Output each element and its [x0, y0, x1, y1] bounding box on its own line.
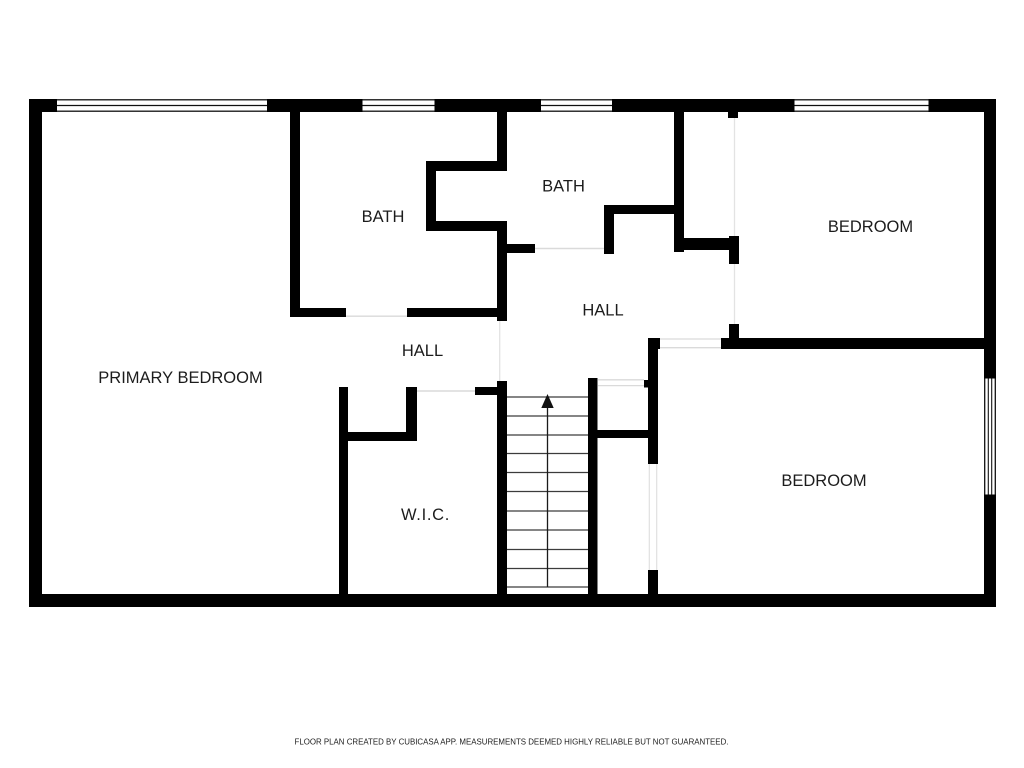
svg-text:W.I.C.: W.I.C. [401, 506, 450, 524]
svg-text:BEDROOM: BEDROOM [781, 472, 866, 490]
svg-text:BATH: BATH [542, 178, 585, 196]
svg-text:FLOOR PLAN CREATED BY CUBICASA: FLOOR PLAN CREATED BY CUBICASA APP. MEAS… [295, 738, 729, 747]
svg-text:BATH: BATH [362, 208, 405, 226]
svg-text:BEDROOM: BEDROOM [828, 218, 913, 236]
svg-text:HALL: HALL [582, 302, 623, 320]
svg-text:PRIMARY BEDROOM: PRIMARY BEDROOM [98, 369, 262, 387]
svg-text:HALL: HALL [402, 342, 443, 360]
